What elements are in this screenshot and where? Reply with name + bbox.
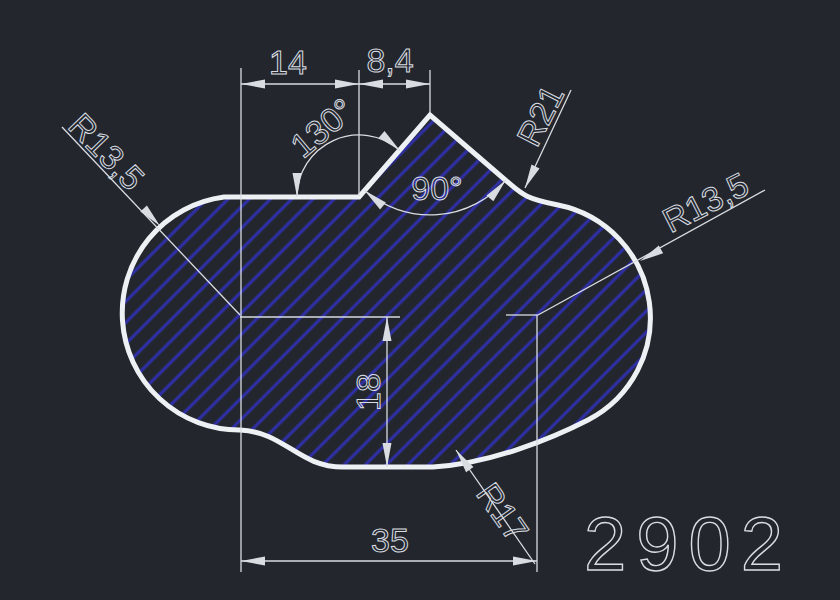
dim-text-r21[interactable]: R21 (509, 79, 571, 152)
arrowhead (359, 80, 383, 89)
part-outline[interactable] (122, 115, 650, 467)
dim-text-35[interactable]: 35 (371, 521, 409, 559)
dim-text-r17[interactable]: R17 (469, 476, 536, 549)
arrowhead (293, 173, 302, 197)
dim-text-90deg[interactable]: 90° (411, 169, 462, 207)
dimension-top-widths[interactable]: 14 8,4 (241, 41, 430, 89)
dim-text-r13-5-left[interactable]: R13,5 (61, 106, 151, 198)
dimension-radius-r21[interactable]: R21 (509, 79, 571, 190)
arrowhead (638, 245, 663, 265)
cad-drawing-canvas: 14 8,4 130° 90° R21 R13,5 R13,5 18 (0, 0, 840, 600)
dimension-radius-r17[interactable]: R17 (452, 447, 536, 564)
dim-text-130deg[interactable]: 130° (283, 91, 361, 165)
dim-text-r13-5-right[interactable]: R13,5 (657, 165, 755, 240)
arrowhead (241, 557, 265, 566)
arrowhead (335, 80, 359, 89)
arrowhead (241, 80, 265, 89)
dim-text-8-4[interactable]: 8,4 (366, 41, 413, 79)
cad-viewport: 14 8,4 130° 90° R21 R13,5 R13,5 18 (0, 0, 840, 600)
dim-text-18[interactable]: 18 (349, 373, 387, 411)
arrowhead (521, 164, 540, 190)
dim-text-14[interactable]: 14 (269, 43, 307, 81)
part-number-label[interactable]: 2902 (584, 501, 793, 586)
arrowhead (406, 80, 430, 89)
arrowhead (513, 557, 537, 566)
